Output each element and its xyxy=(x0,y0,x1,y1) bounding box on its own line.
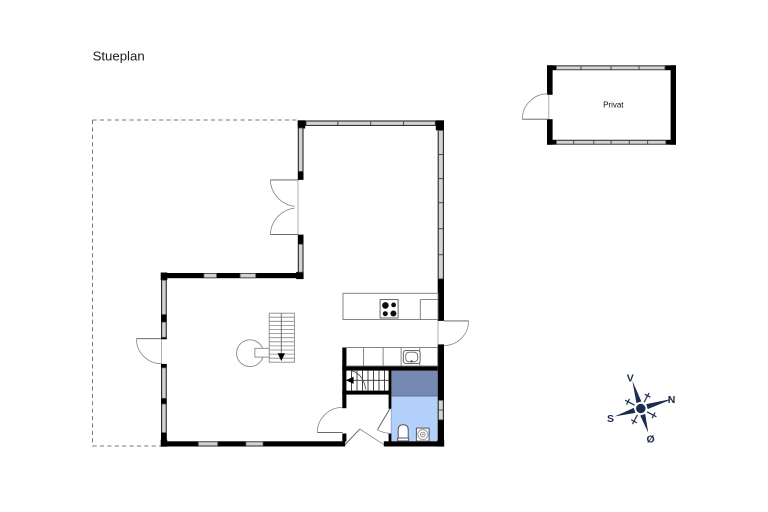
svg-text:V: V xyxy=(627,373,634,385)
svg-text:Privat: Privat xyxy=(603,101,624,110)
svg-text:Ø: Ø xyxy=(647,434,655,446)
svg-text:N: N xyxy=(668,394,676,406)
svg-text:Stueplan: Stueplan xyxy=(93,48,145,63)
svg-text:S: S xyxy=(607,413,614,425)
